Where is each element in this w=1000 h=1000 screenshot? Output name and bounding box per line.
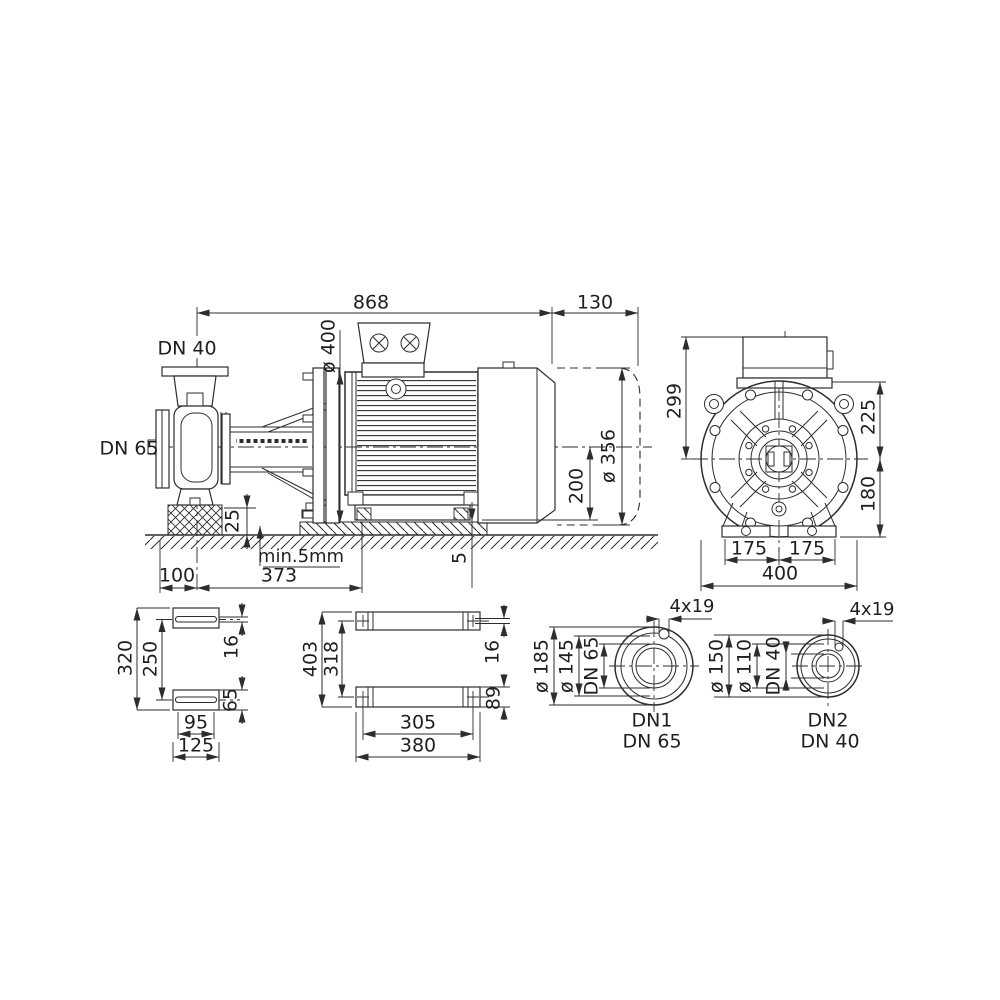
motor-foot-front: [348, 492, 363, 505]
dim-overall-length: 403: [300, 641, 322, 677]
discharge-flange: [162, 367, 228, 376]
flange-hole: [838, 426, 848, 436]
front-view: 299 225 180 175 175 400: [664, 331, 887, 591]
coupling-guard-holes: [236, 437, 308, 443]
motor-flange-side: [313, 368, 324, 523]
dim-hole-spacing: 250: [140, 641, 162, 677]
bolt-holes-note: 4x19: [849, 599, 894, 620]
dim-overall-width: 380: [400, 735, 436, 757]
dim-shim: 5: [449, 552, 471, 564]
dim-bolt-circle: ø 110: [734, 639, 756, 693]
anchor-bolt: [190, 498, 200, 505]
dim-fan-clearance: 130: [577, 292, 613, 314]
dim-foot-left: 175: [731, 538, 767, 560]
dim-motor-flange-dia: ø 400: [318, 319, 340, 373]
pump-dimension-drawing: 868 130 ø 400 DN 40 DN 65 ø 356 200 25 m…: [0, 0, 1000, 1000]
motor-foot-plan: 403 318 16 89 305 380: [300, 605, 511, 762]
foot-hole: [742, 527, 751, 536]
dim-motor-dia: ø 356: [598, 429, 620, 483]
dim-foot-right: 175: [789, 538, 825, 560]
fan-cover-handle: [503, 362, 514, 368]
dim-foot-width: 89: [483, 686, 505, 710]
volute-inner: [181, 413, 212, 482]
dim-shaft-height: 200: [566, 468, 588, 504]
dim-overall-length: 320: [115, 640, 137, 676]
dim-nominal-dia: DN 40: [763, 636, 785, 695]
bolt-holes-note: 4x19: [669, 596, 714, 617]
flange-bolt-hole: [835, 643, 843, 651]
flange-bolt: [303, 469, 313, 476]
port-label: DN1: [632, 710, 673, 732]
dim-outer-dia: ø 150: [706, 639, 728, 693]
dim-foot-span: 373: [261, 565, 297, 587]
flange-bolt: [303, 373, 313, 380]
discharge-cap: [187, 393, 203, 406]
flange-bolt-hole: [659, 629, 669, 639]
dim-foot-offset: 100: [159, 565, 195, 587]
flange-hole: [838, 483, 848, 493]
side-view: 868 130 ø 400 DN 40 DN 65 ø 356 200 25 m…: [99, 292, 658, 594]
dim-hole-spacing-x: 95: [184, 712, 208, 734]
port-label: DN2: [808, 710, 849, 732]
ground-hatch: [145, 536, 658, 549]
motor-foot-bottom: [356, 687, 480, 707]
port-size: DN 40: [800, 731, 859, 753]
flange-hole: [710, 483, 720, 493]
motor-grout-strip: [300, 522, 487, 535]
dim-box-top-to-center: 299: [664, 383, 686, 419]
foot-hole: [808, 527, 817, 536]
suction-flange-detail: 4x19 ø 185 ø 145 DN 65 DN1 DN 65: [531, 596, 715, 753]
motor-foot-top: [356, 612, 480, 630]
dim-center-to-bottom: 180: [858, 476, 880, 512]
pump-foot-plan: 320 250 16 65 95 125: [115, 603, 249, 762]
pump-foundation-block: [168, 505, 222, 535]
dim-total-length: 868: [353, 292, 389, 314]
flange-hole: [746, 390, 756, 400]
drain-plug: [772, 502, 786, 516]
lantern-bracket-plate: [222, 414, 230, 484]
flange-hole: [803, 390, 813, 400]
dim-foundation-height: 25: [222, 509, 244, 533]
dim-total-width: 400: [762, 563, 798, 585]
drawing-canvas: 868 130 ø 400 DN 40 DN 65 ø 356 200 25 m…: [0, 0, 1000, 1000]
dim-hole-spacing-x: 305: [400, 712, 436, 734]
dim-top-to-center: 225: [858, 399, 880, 435]
dim-foot-width: 65: [220, 688, 242, 712]
port-size: DN 65: [622, 731, 681, 753]
dim-slot-width: 16: [221, 635, 243, 659]
fan-cover: [478, 368, 555, 523]
dim-outer-dia: ø 185: [531, 639, 553, 693]
flange-bolt: [303, 415, 313, 422]
dim-hole-spacing: 318: [321, 641, 343, 677]
flange-outer-circle: [615, 627, 693, 705]
terminal-box-front: [743, 337, 827, 378]
dim-overall-width: 125: [178, 735, 214, 757]
dim-nominal-dia: DN 65: [581, 636, 603, 695]
suction-port-label: DN 65: [99, 438, 158, 460]
discharge-flange-detail: 4x19 ø 150 ø 110 DN 40 DN2 DN 40: [706, 599, 895, 753]
motor-ribs: [357, 377, 476, 491]
discharge-port-label: DN 40: [157, 338, 216, 360]
flange-hole: [710, 426, 720, 436]
motor-foot-rear: [464, 492, 479, 505]
flange-bolt: [303, 511, 313, 518]
motor-foot-rail: [355, 505, 470, 520]
dim-slot-width: 16: [482, 640, 504, 664]
dim-bolt-circle: ø 145: [556, 639, 578, 693]
motor-base-band: [349, 495, 474, 505]
